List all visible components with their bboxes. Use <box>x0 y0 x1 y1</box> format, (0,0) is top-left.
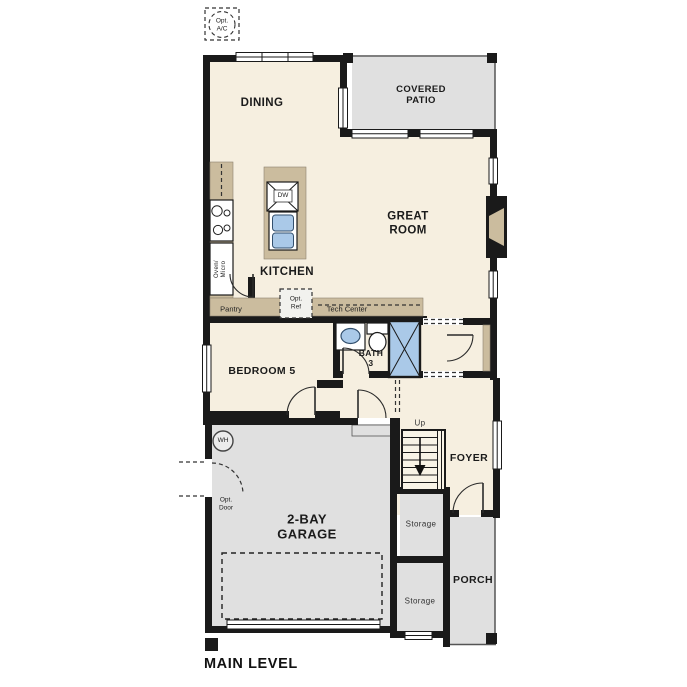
porch-label: PORCH <box>453 574 493 586</box>
storage-lower-label: Storage <box>405 596 436 605</box>
kitchen-label: KITCHEN <box>260 266 314 280</box>
room-floors <box>207 57 497 645</box>
stairs-up-label: Up <box>414 418 425 427</box>
garage-entry-landing <box>352 425 392 436</box>
fireplace <box>486 196 507 258</box>
dishwasher-label: DW <box>278 192 289 200</box>
great-room-label: GREAT ROOM <box>387 210 428 237</box>
dining-label: DINING <box>241 97 284 111</box>
plan-marker-post <box>205 638 218 651</box>
optional-refrigerator-label: Opt. Ref <box>290 295 302 310</box>
pantry-label: Pantry <box>220 306 242 315</box>
porch-post <box>486 633 497 644</box>
optional-door-label: Opt. Door <box>219 496 233 511</box>
bath3-label: BATH 3 <box>359 348 384 368</box>
foyer-label: FOYER <box>450 452 488 464</box>
water-heater-label: WH <box>218 437 229 445</box>
storage-upper-label: Storage <box>406 519 437 528</box>
floor-plan-drawing <box>0 0 687 687</box>
stairs <box>402 430 445 490</box>
covered-patio-label: COVERED PATIO <box>396 84 446 106</box>
floor-plan: DINING COVERED PATIO GREAT ROOM KITCHEN … <box>0 0 687 687</box>
cooktop <box>210 200 233 241</box>
oven-micro-label: Oven/ Micro <box>214 260 228 278</box>
garage-label: 2-BAY GARAGE <box>277 512 336 543</box>
plan-title: MAIN LEVEL <box>204 656 298 672</box>
optional-ac-label: Opt. A/C <box>216 17 228 32</box>
bath-sink <box>341 329 360 344</box>
bedroom5-label: BEDROOM 5 <box>228 365 295 377</box>
tech-center-label: Tech Center <box>327 306 367 315</box>
